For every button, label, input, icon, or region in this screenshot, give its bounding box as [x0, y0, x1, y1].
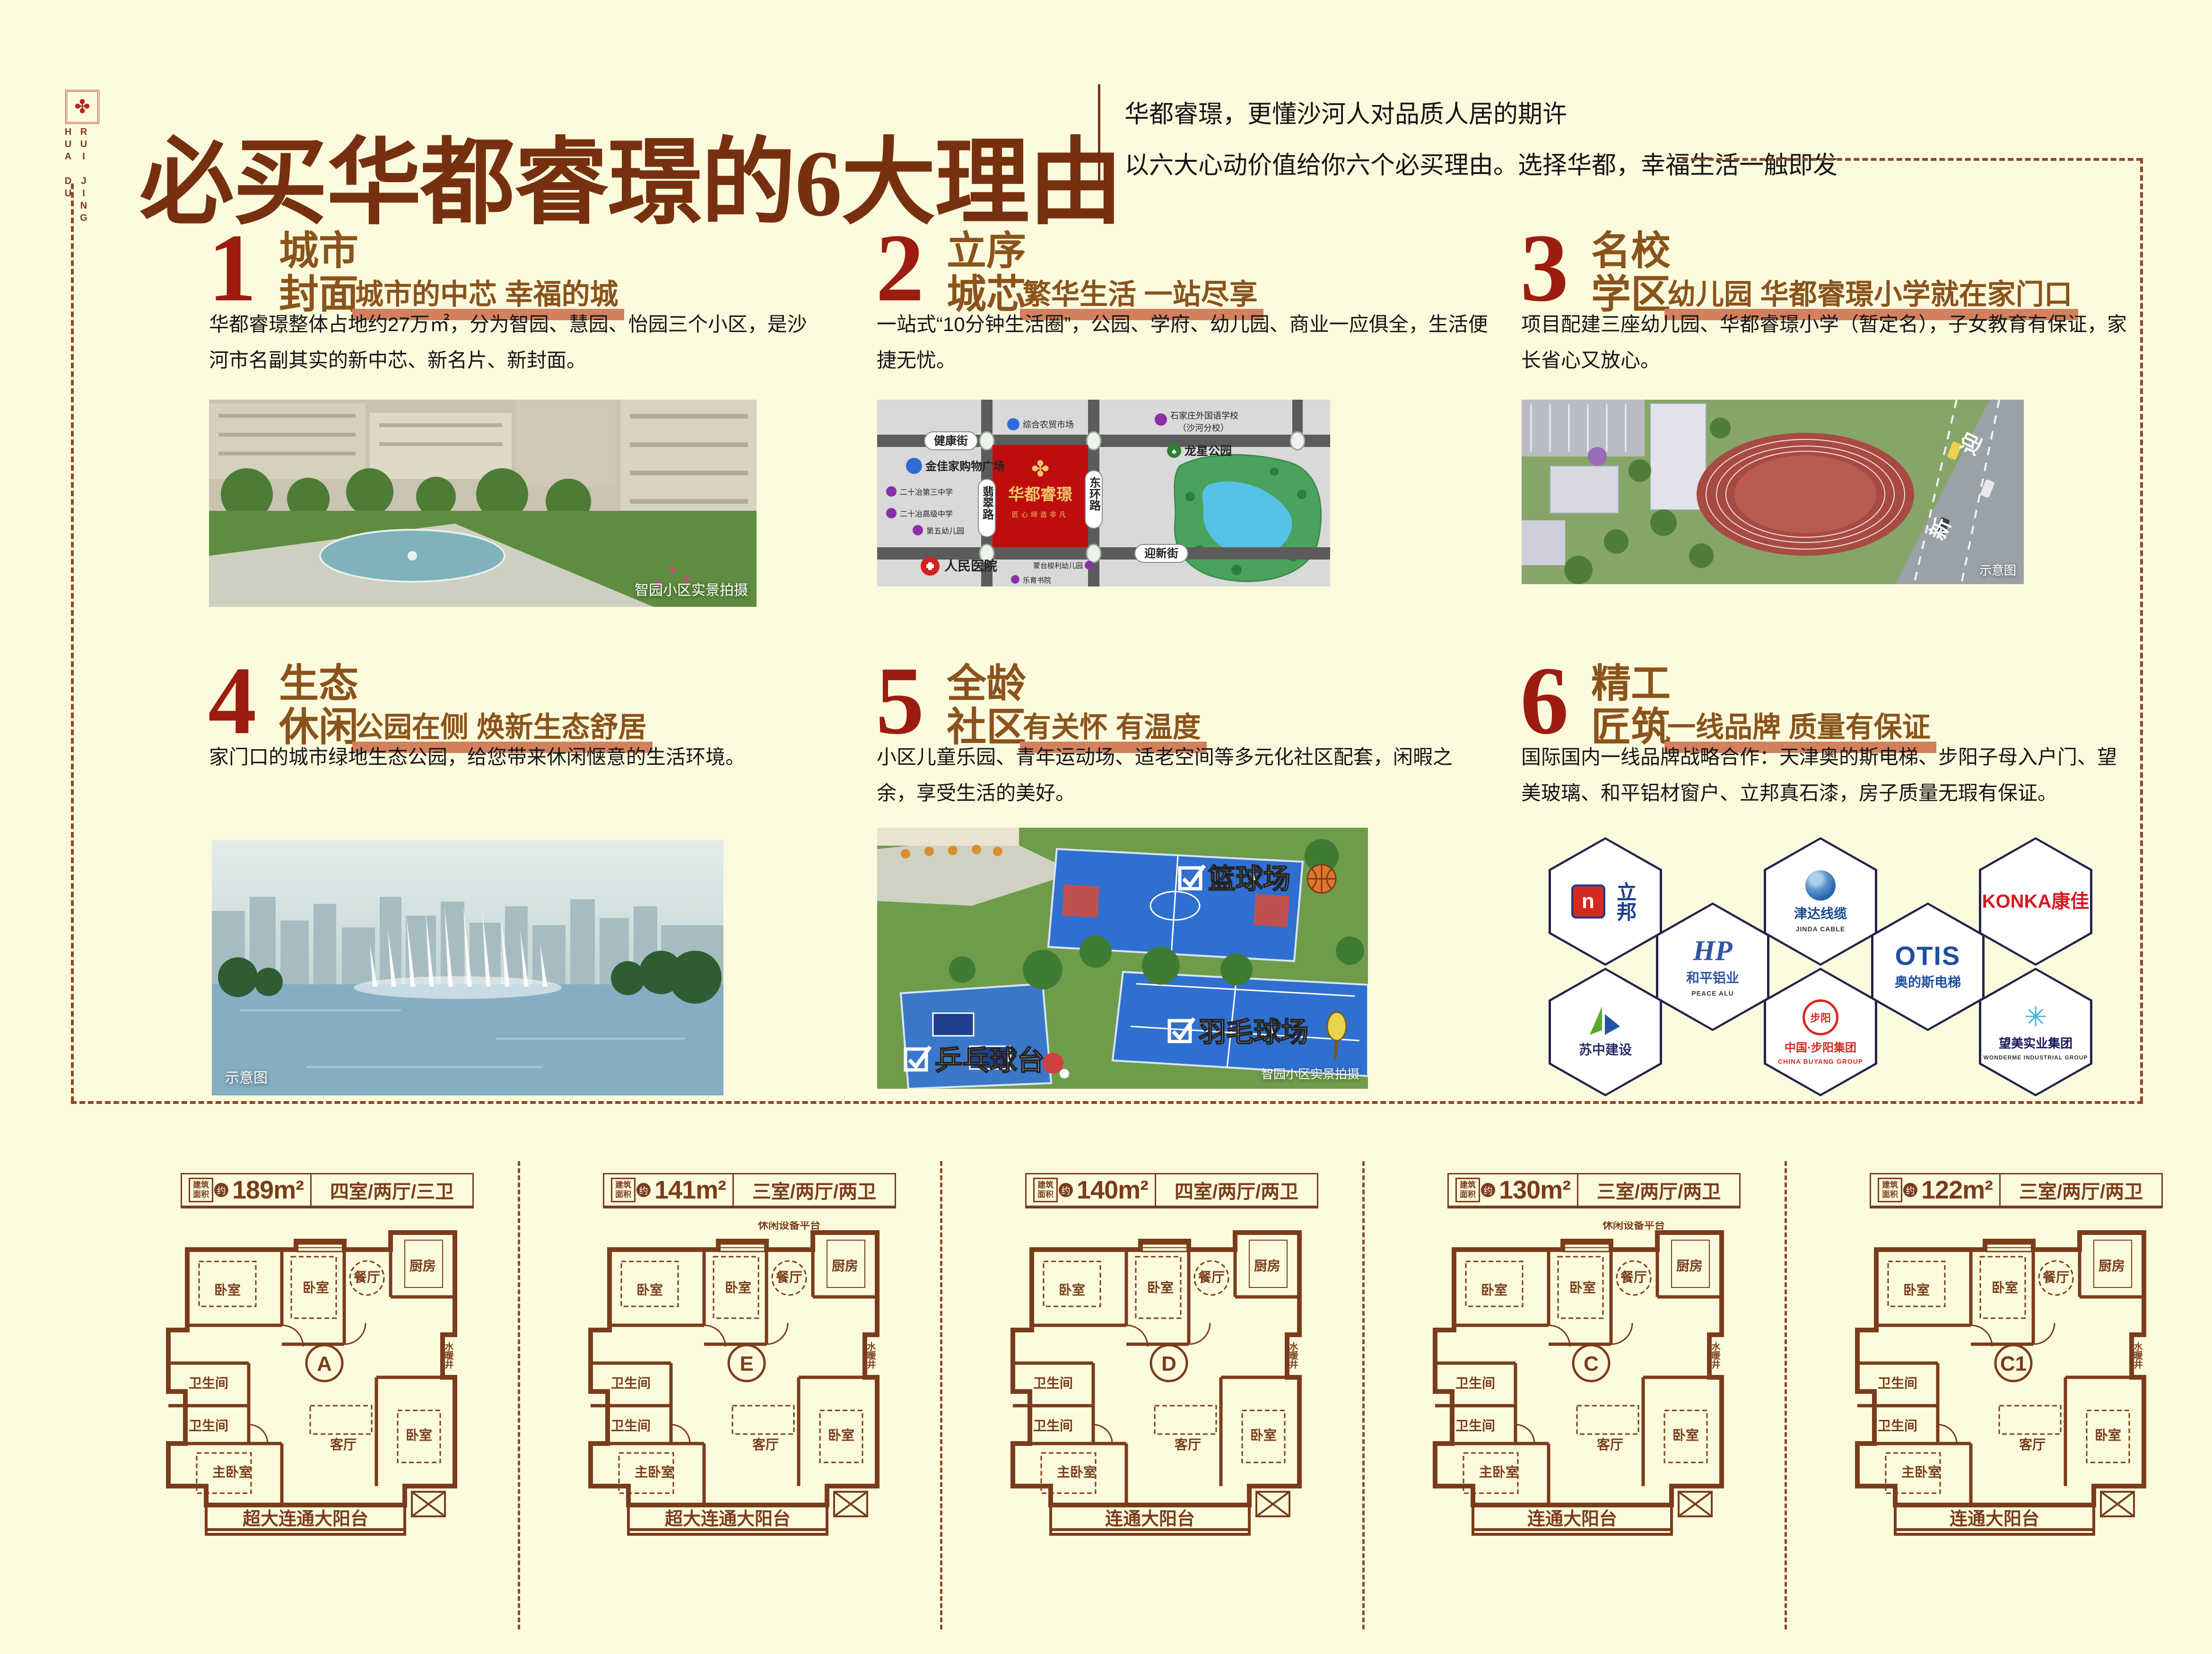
svg-text:主卧室: 主卧室 [1901, 1464, 1941, 1479]
plan-rooms: 四室/两厅/三卫 [312, 1174, 472, 1206]
svg-text:厨房: 厨房 [1676, 1258, 1703, 1273]
svg-text:主卧室: 主卧室 [1057, 1464, 1097, 1479]
reason-number: 5 [876, 655, 924, 747]
plan-label: 建筑 面积 约 141m² 三室/两厅/两卫 [603, 1173, 896, 1208]
area-label-box: 建筑 面积 [611, 1178, 636, 1202]
reason-title-line1: 名校 [1591, 229, 1671, 272]
svg-text:卧室: 卧室 [1147, 1280, 1174, 1295]
brand-name: 望美实业集团 [1999, 1034, 2073, 1051]
svg-text:卫生间: 卫生间 [1878, 1418, 1917, 1433]
plan-area: 130m² [1499, 1175, 1570, 1205]
svg-text:健康街: 健康街 [934, 434, 968, 447]
reason-number: 6 [1520, 655, 1569, 747]
area-label-box: 建筑 面积 [1878, 1178, 1902, 1202]
svg-text:连通大阳台: 连通大阳台 [1527, 1509, 1617, 1529]
svg-text:客厅: 客厅 [330, 1437, 357, 1452]
photo-caption: 智园小区实景拍摄 [635, 578, 748, 599]
plan-label: 建筑 面积 约 140m² 四室/两厅/两卫 [1025, 1173, 1318, 1208]
svg-text:卧室: 卧室 [1250, 1427, 1277, 1443]
svg-text:厨房: 厨房 [832, 1258, 858, 1273]
plan-label: 建筑 面积 约 130m² 三室/两厅/两卫 [1447, 1173, 1741, 1208]
plan-area: 141m² [654, 1175, 726, 1205]
svg-text:餐厅: 餐厅 [1198, 1270, 1225, 1285]
svg-text:♣: ♣ [1172, 448, 1177, 456]
jinda-logo-icon [1805, 870, 1836, 901]
svg-text:卫生间: 卫生间 [1455, 1418, 1495, 1433]
svg-text:客厅: 客厅 [2019, 1437, 2046, 1452]
approx-badge: 约 [214, 1183, 228, 1197]
dashed-frame-left [71, 184, 74, 1102]
header-subtitle: 华都睿璟，更懂沙河人对品质人居的期许 以六大心动价值给你六个必买理由。选择华都，… [1124, 89, 1838, 191]
svg-text:蒙台梭利幼儿园: 蒙台梭利幼儿园 [1033, 561, 1083, 570]
floor-plan: 建筑 面积 约 141m² 三室/两厅/两卫 [559, 1168, 896, 1641]
pingpong-paddle-icon [1043, 1053, 1063, 1074]
otis-logo-icon: OTIS [1895, 943, 1961, 969]
brand-name: 奥的斯电梯 [1895, 972, 1961, 991]
plan-area: 122m² [1921, 1175, 1993, 1205]
wonderme-logo-icon: ✳ [2024, 1004, 2047, 1031]
svg-text:客厅: 客厅 [1175, 1437, 1201, 1452]
svg-text:主卧室: 主卧室 [1479, 1464, 1519, 1479]
svg-text:餐厅: 餐厅 [776, 1270, 802, 1285]
community-photo-art [209, 400, 757, 607]
svg-text:客厅: 客厅 [1597, 1437, 1623, 1452]
huadu-logo-icon: ✤ [65, 90, 99, 124]
brand-jinda: 津达线缆 JINDA CABLE [1764, 837, 1877, 966]
plan-separator [1362, 1161, 1365, 1629]
brand-name: 中国·步阳集团 [1785, 1038, 1856, 1055]
market-icon [1007, 418, 1019, 430]
reason-title-line1: 生态 [279, 662, 358, 705]
photo-caption: 示意图 [225, 1066, 268, 1087]
floor-plan: 建筑 面积 约 130m² 三室/两厅/两卫 [1404, 1168, 1741, 1641]
nippon-logo-icon: n [1571, 884, 1605, 919]
svg-text:乐育书院: 乐育书院 [1023, 576, 1051, 585]
svg-text:C: C [1584, 1352, 1599, 1375]
svg-text:连通大阳台: 连通大阳台 [1105, 1509, 1195, 1529]
svg-text:人民医院: 人民医院 [944, 558, 997, 573]
svg-text:篮球场: 篮球场 [1208, 864, 1290, 894]
svg-text:羽毛球场: 羽毛球场 [1199, 1017, 1308, 1048]
reason-title: 全龄 社区 [947, 662, 1026, 749]
svg-text:金佳家购物广场: 金佳家购物广场 [925, 460, 1005, 473]
approx-badge: 约 [1059, 1183, 1073, 1197]
plan-separator [940, 1161, 942, 1629]
svg-text:卧室: 卧室 [1672, 1427, 1699, 1443]
reason-section-6: 6 精工 匠筑 一线品牌 质量有保证 国际国内一线品牌战略合作：天津奥的斯电梯、… [1520, 655, 2142, 1102]
brand-name: 和平铝业 [1686, 968, 1739, 987]
svg-text:水暖井: 水暖井 [1710, 1342, 1721, 1369]
reason-title: 名校 学区 [1591, 229, 1671, 316]
floor-plan-drawing: 卧室 卧室 餐厅 厨房 卫生间 卫生间 主卧室 客厅 卧室 水暖井 休闲设备平台… [1407, 1221, 1738, 1619]
svg-text:D: D [1161, 1352, 1176, 1375]
svg-text:水暖井: 水暖井 [2133, 1342, 2143, 1369]
plan-area: 140m² [1077, 1175, 1148, 1205]
reason-number: 4 [208, 655, 257, 747]
floor-plan-drawing: 卧室 卧室 餐厅 厨房 卫生间 卫生间 主卧室 客厅 卧室 水暖井 休闲设备平台… [562, 1221, 893, 1619]
brand-buyang: 步阳 中国·步阳集团 CHINA BUYANG GROUP [1764, 968, 1877, 1096]
reason-body: 华都睿璟整体占地约27万㎡，分为智园、慧园、怡园三个小区，是沙河市名副其实的新中… [209, 306, 821, 378]
brand-sub: WONDERME INDUSTRIAL GROUP [1984, 1054, 2088, 1061]
reason-section-3: 3 名校 学区 幼儿园 华都睿璟小学就在家门口 项目配建三座幼儿园、华都睿璟小学… [1520, 222, 2142, 669]
svg-text:卧室: 卧室 [2095, 1427, 2121, 1443]
svg-text:卧室: 卧室 [214, 1282, 241, 1297]
floor-plan: 建筑 面积 约 189m² 四室/两厅/三卫 [137, 1168, 474, 1641]
plan-separator [518, 1161, 520, 1629]
reason-section-1: 1 城市 封面 城市的中芯 幸福的城 华都睿璟整体占地约27万㎡，分为智园、慧园… [208, 222, 823, 669]
svg-text:餐厅: 餐厅 [354, 1270, 380, 1285]
svg-text:卫生间: 卫生间 [1033, 1376, 1073, 1391]
svg-text:主卧室: 主卧室 [212, 1464, 252, 1479]
brand-name: 立邦 [1611, 882, 1640, 921]
plan-rooms: 三室/两厅/两卫 [2001, 1174, 2161, 1206]
svg-text:石家庄外国语学校: 石家庄外国语学校 [1170, 411, 1238, 420]
reason-title-line1: 精工 [1591, 662, 1671, 705]
reason-body: 一站式“10分钟生活圈”，公园、学府、幼儿园、商业一应俱全，生活便捷无忧。 [877, 306, 1489, 378]
svg-text:综合农贸市场: 综合农贸市场 [1023, 420, 1074, 429]
brand-suzhong: 苏中建设 [1549, 968, 1662, 1096]
svg-text:休闲设备平台: 休闲设备平台 [1602, 1221, 1665, 1231]
svg-text:厨房: 厨房 [2099, 1258, 2125, 1273]
plan-area-cell: 建筑 面积 约 189m² [182, 1174, 312, 1206]
svg-text:C1: C1 [2000, 1352, 2027, 1375]
plan-rooms: 四室/两厅/两卫 [1156, 1174, 1317, 1206]
dashed-frame-top [1682, 158, 2142, 161]
reason-number: 3 [1520, 222, 1569, 315]
reason-body: 小区儿童乐园、青年运动场、适老空间等多元化社区配套，闲暇之余，享受生活的美好。 [877, 739, 1489, 811]
svg-text:A: A [317, 1352, 332, 1375]
photo-caption: 智园小区实景拍摄 [1261, 1065, 1359, 1082]
kindergarten-icon [1085, 561, 1093, 569]
plan-label: 建筑 面积 约 189m² 四室/两厅/三卫 [181, 1173, 474, 1208]
svg-text:餐厅: 餐厅 [2043, 1270, 2069, 1285]
svg-text:卧室: 卧室 [1059, 1282, 1085, 1297]
svg-text:卧室: 卧室 [1992, 1280, 2018, 1295]
svg-text:迎新街: 迎新街 [1144, 547, 1178, 560]
svg-text:卧室: 卧室 [828, 1427, 854, 1443]
plan-separator [1785, 1161, 1787, 1629]
reason-title-line1: 城市 [279, 229, 358, 272]
svg-text:水暖井: 水暖井 [866, 1342, 876, 1369]
brand-wonderme: ✳ 望美实业集团 WONDERME INDUSTRIAL GROUP [1979, 968, 2092, 1096]
svg-text:水暖井: 水暖井 [444, 1342, 454, 1369]
park-label: ♣ 龙星公园 [1167, 444, 1232, 458]
reason-body: 家门口的城市绿地生态公园，给您带来休闲惬意的生活环境。 [209, 739, 821, 775]
reason-body: 国际国内一线品牌战略合作：天津奥的斯电梯、步阳子母入户门、望美玻璃、和平铝材窗户… [1521, 739, 2134, 811]
svg-text:（沙河分校）: （沙河分校） [1178, 423, 1229, 433]
plan-area-cell: 建筑 面积 约 140m² [1027, 1174, 1156, 1206]
reason-section-5: 5 全龄 社区 有关怀 有温度 小区儿童乐园、青年运动场、适老空间等多元化社区配… [876, 655, 1490, 1102]
plan-rooms: 三室/两厅/两卫 [734, 1174, 895, 1206]
svg-text:连通大阳台: 连通大阳台 [1950, 1509, 2039, 1529]
area-label-box: 建筑 面积 [1033, 1178, 1058, 1202]
svg-text:E: E [740, 1352, 753, 1375]
svg-text:厨房: 厨房 [1254, 1258, 1280, 1273]
svg-text:客厅: 客厅 [752, 1437, 779, 1452]
svg-text:第五幼儿园: 第五幼儿园 [926, 527, 964, 535]
brand-sub: JINDA CABLE [1796, 925, 1846, 933]
reason-section-2: 2 立序 城芯 繁华生活 一站尽享 一站式“10分钟生活圈”，公园、学府、幼儿园… [876, 222, 1490, 669]
svg-text:超大连通大阳台: 超大连通大阳台 [665, 1509, 791, 1529]
plan-rooms: 三室/两厅/两卫 [1578, 1174, 1739, 1206]
plan-area-cell: 建筑 面积 约 130m² [1449, 1174, 1578, 1206]
plan-area-cell: 建筑 面积 约 141m² [604, 1174, 734, 1206]
reason-title-line1: 全龄 [947, 662, 1026, 705]
svg-text:厨房: 厨房 [409, 1258, 436, 1273]
school-icon [886, 486, 897, 497]
floor-plan-drawing: 卧室 卧室 餐厅 厨房 卫生间 卫生间 主卧室 客厅 卧室 水暖井 A 超大连通… [140, 1221, 471, 1619]
hospital-icon [921, 557, 940, 576]
svg-text:乒乓球台: 乒乓球台 [935, 1045, 1045, 1076]
sports-courts-art: 篮球场 羽毛球场 乒乓球台 [877, 828, 1368, 1089]
area-label-box: 建筑 面积 [189, 1178, 213, 1202]
plan-area-cell: 建筑 面积 约 122m² [1871, 1174, 2001, 1206]
reason-body: 项目配建三座幼儿园、华都睿璟小学（暂定名），子女教育有保证，家长省心又放心。 [1521, 306, 2134, 378]
svg-text:二十冶第三中学: 二十冶第三中学 [900, 488, 953, 497]
svg-text:卫生间: 卫生间 [1033, 1418, 1073, 1433]
svg-text:卧室: 卧室 [1481, 1282, 1507, 1297]
peace-alu-logo-icon: HP [1693, 936, 1732, 965]
svg-text:卫生间: 卫生间 [189, 1418, 228, 1433]
school-icon [1155, 413, 1167, 426]
brand-nippon: n 立邦 [1549, 837, 1662, 966]
approx-badge: 约 [1903, 1183, 1917, 1197]
header-divider [1098, 84, 1100, 184]
school-aerial-art: 迎 新 [1522, 400, 2024, 584]
reason-number: 2 [876, 222, 924, 315]
poster-page: { "colors":{ "background":"#fbfadd", "ac… [0, 0, 2212, 1654]
reason-title: 城市 封面 [279, 229, 358, 316]
community-photo: 智园小区实景拍摄 [209, 400, 757, 607]
school-aerial-photo: 迎 新 示意图 [1522, 400, 2024, 584]
svg-text:卫生间: 卫生间 [611, 1418, 651, 1433]
project-name: 华都睿璟 [1008, 486, 1072, 504]
park-lake-photo: 示意图 [212, 840, 723, 1095]
svg-text:卫生间: 卫生间 [1878, 1376, 1917, 1391]
floor-plan: 建筑 面积 约 122m² 三室/两厅/两卫 [1826, 1168, 2163, 1641]
konka-logo-icon: KONKA康佳 [1982, 892, 2090, 911]
svg-text:翡翠路: 翡翠路 [981, 486, 994, 520]
brand-sub: CHINA BUYANG GROUP [1778, 1058, 1863, 1065]
brand-sub: PEACE ALU [1691, 989, 1733, 997]
logo-text-2: RUI JING [78, 127, 89, 225]
brand-hex-grid: n 立邦 津达线缆 JINDA CABLE KONKA康佳 HP 和平铝业 PE… [1532, 837, 2118, 1096]
photo-caption: 示意图 [1979, 561, 2016, 578]
buyang-logo-icon: 步阳 [1803, 999, 1838, 1035]
svg-text:卧室: 卧室 [636, 1282, 663, 1297]
brand-name: 津达线缆 [1794, 903, 1847, 922]
location-map: ✤ 华都睿璟 匠心缔造非凡 健康街 迎新街 翡翠路 东环路 综合农贸市场 石家庄… [877, 400, 1330, 586]
reason-title: 精工 匠筑 [1591, 662, 1671, 749]
suzhong-logo-icon [1589, 1006, 1622, 1037]
project-slogan: 匠心缔造非凡 [1012, 511, 1069, 518]
svg-text:卫生间: 卫生间 [189, 1376, 228, 1391]
logo-vertical-text: HUA DU RUI JING [62, 127, 89, 225]
brand-name: 苏中建设 [1579, 1040, 1632, 1059]
reason-title: 立序 城芯 [947, 229, 1026, 316]
svg-text:水暖井: 水暖井 [1288, 1342, 1298, 1369]
svg-text:卧室: 卧室 [1569, 1280, 1596, 1295]
svg-text:卧室: 卧室 [303, 1280, 329, 1295]
brand-otis: OTIS 奥的斯电梯 [1871, 902, 1985, 1031]
plan-area: 189m² [232, 1175, 304, 1205]
floor-plan-drawing: 卧室 卧室 餐厅 厨房 卫生间 卫生间 主卧室 客厅 卧室 水暖井 C1 连通大… [1829, 1221, 2160, 1619]
svg-text:卧室: 卧室 [406, 1427, 432, 1443]
svg-text:龙星公园: 龙星公园 [1184, 445, 1232, 458]
svg-text:卫生间: 卫生间 [611, 1376, 651, 1391]
brand-peace-alu: HP 和平铝业 PEACE ALU [1656, 902, 1769, 1031]
svg-text:餐厅: 餐厅 [1620, 1270, 1647, 1285]
kindergarten-icon [913, 525, 923, 535]
brand-konka: KONKA康佳 [1979, 837, 2092, 966]
svg-text:主卧室: 主卧室 [635, 1464, 674, 1479]
svg-text:卫生间: 卫生间 [1455, 1376, 1495, 1391]
reason-title-line1: 立序 [947, 229, 1026, 272]
svg-text:卧室: 卧室 [725, 1280, 751, 1295]
project-emblem-icon: ✤ [1031, 456, 1050, 481]
svg-text:卧室: 卧室 [1903, 1282, 1930, 1297]
reason-section-4: 4 生态 休闲 公园在侧 焕新生态舒居 家门口的城市绿地生态公园，给您带来休闲惬… [208, 655, 823, 1102]
location-map-art: ✤ 华都睿璟 匠心缔造非凡 健康街 迎新街 翡翠路 东环路 综合农贸市场 石家庄… [877, 400, 1330, 586]
academy-icon [1011, 575, 1019, 584]
svg-text:二十冶高级中学: 二十冶高级中学 [900, 510, 953, 518]
school-icon [886, 508, 897, 518]
area-label-box: 建筑 面积 [1455, 1178, 1480, 1202]
header-subtitle-line2: 以六大心动价值给你六个必买理由。选择华都，幸福生活一触即发 [1124, 140, 1838, 191]
mall-icon [906, 458, 922, 474]
svg-text:超大连通大阳台: 超大连通大阳台 [243, 1509, 368, 1529]
plan-label: 建筑 面积 约 122m² 三室/两厅/两卫 [1870, 1173, 2163, 1208]
reason-title: 生态 休闲 [279, 662, 358, 749]
header-subtitle-line1: 华都睿璟，更懂沙河人对品质人居的期许 [1124, 89, 1838, 140]
svg-text:休闲设备平台: 休闲设备平台 [758, 1221, 820, 1231]
sports-courts-photo: 篮球场 羽毛球场 乒乓球台 智园小区实景拍摄 [877, 828, 1368, 1089]
park-lake-art [212, 840, 723, 1095]
approx-badge: 约 [1481, 1183, 1495, 1197]
badminton-racket-icon [1327, 1012, 1346, 1041]
svg-text:东环路: 东环路 [1088, 476, 1101, 511]
reason-number: 1 [208, 222, 257, 315]
floor-plan: 建筑 面积 约 140m² 四室/两厅/两卫 [982, 1168, 1318, 1641]
approx-badge: 约 [636, 1183, 651, 1197]
floor-plan-drawing: 卧室 卧室 餐厅 厨房 卫生间 卫生间 主卧室 客厅 卧室 水暖井 D 连通大阳… [984, 1221, 1315, 1619]
